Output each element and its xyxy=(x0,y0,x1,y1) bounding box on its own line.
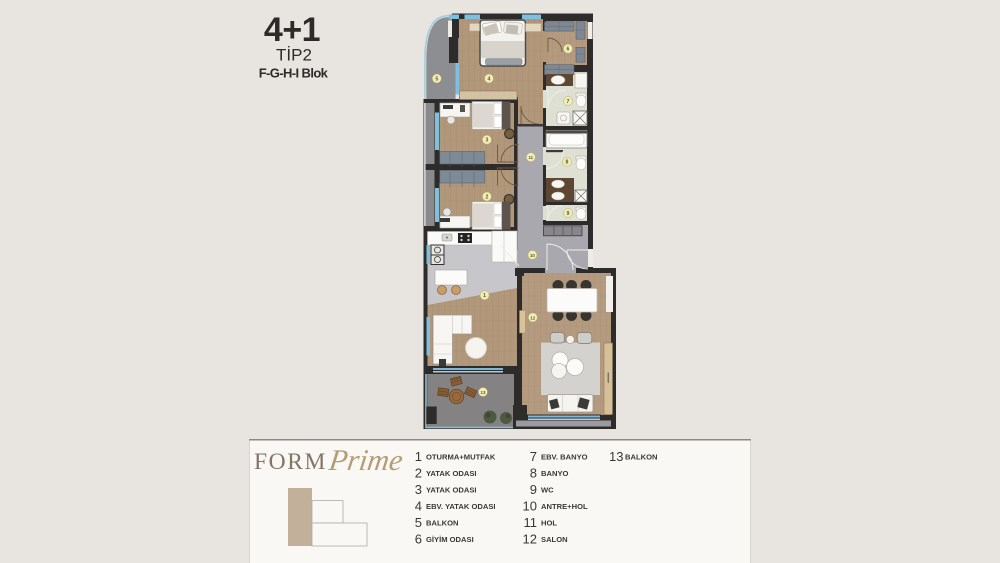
svg-text:SALON: SALON xyxy=(541,535,568,544)
svg-text:4: 4 xyxy=(488,76,491,82)
svg-text:EBV. BANYO: EBV. BANYO xyxy=(541,453,588,462)
svg-text:4+1: 4+1 xyxy=(264,11,320,49)
svg-text:HOL: HOL xyxy=(541,519,557,528)
svg-text:5: 5 xyxy=(435,76,438,82)
svg-text:WC: WC xyxy=(541,486,554,495)
svg-text:7: 7 xyxy=(567,99,570,105)
svg-text:EBV. YATAK ODASI: EBV. YATAK ODASI xyxy=(426,502,496,511)
svg-text:TİP2: TİP2 xyxy=(276,46,312,65)
svg-text:F-G-H-I Blok: F-G-H-I Blok xyxy=(259,66,329,81)
svg-text:9: 9 xyxy=(530,482,537,497)
svg-text:BANYO: BANYO xyxy=(541,469,569,478)
svg-text:8: 8 xyxy=(566,160,569,166)
svg-text:10: 10 xyxy=(523,499,537,514)
svg-text:13: 13 xyxy=(481,390,486,395)
svg-text:12: 12 xyxy=(530,315,535,320)
svg-text:BALKON: BALKON xyxy=(625,453,657,462)
svg-text:FORM: FORM xyxy=(254,449,327,475)
svg-text:10: 10 xyxy=(530,253,535,258)
svg-text:Prime: Prime xyxy=(326,443,405,477)
svg-text:2: 2 xyxy=(415,466,422,481)
svg-text:12: 12 xyxy=(523,532,537,547)
svg-text:13: 13 xyxy=(609,449,623,464)
svg-text:3: 3 xyxy=(415,482,422,497)
svg-text:11: 11 xyxy=(524,515,538,530)
svg-text:1: 1 xyxy=(483,293,486,299)
svg-text:7: 7 xyxy=(530,449,537,464)
svg-text:1: 1 xyxy=(415,449,422,464)
svg-text:11: 11 xyxy=(528,155,533,160)
svg-text:BALKON: BALKON xyxy=(426,519,458,528)
svg-text:6: 6 xyxy=(567,47,570,53)
svg-text:OTURMA+MUTFAK: OTURMA+MUTFAK xyxy=(426,453,496,462)
svg-text:YATAK ODASI: YATAK ODASI xyxy=(426,486,477,495)
svg-text:3: 3 xyxy=(485,138,488,144)
svg-text:ANTRE+HOL: ANTRE+HOL xyxy=(541,502,588,511)
svg-text:4: 4 xyxy=(415,499,422,514)
svg-text:YATAK ODASI: YATAK ODASI xyxy=(426,469,477,478)
svg-text:2: 2 xyxy=(485,194,488,200)
svg-text:8: 8 xyxy=(530,466,537,481)
svg-text:5: 5 xyxy=(415,515,422,530)
svg-text:9: 9 xyxy=(567,211,570,217)
svg-text:6: 6 xyxy=(415,532,422,547)
svg-text:GİYİM ODASI: GİYİM ODASI xyxy=(426,535,474,544)
